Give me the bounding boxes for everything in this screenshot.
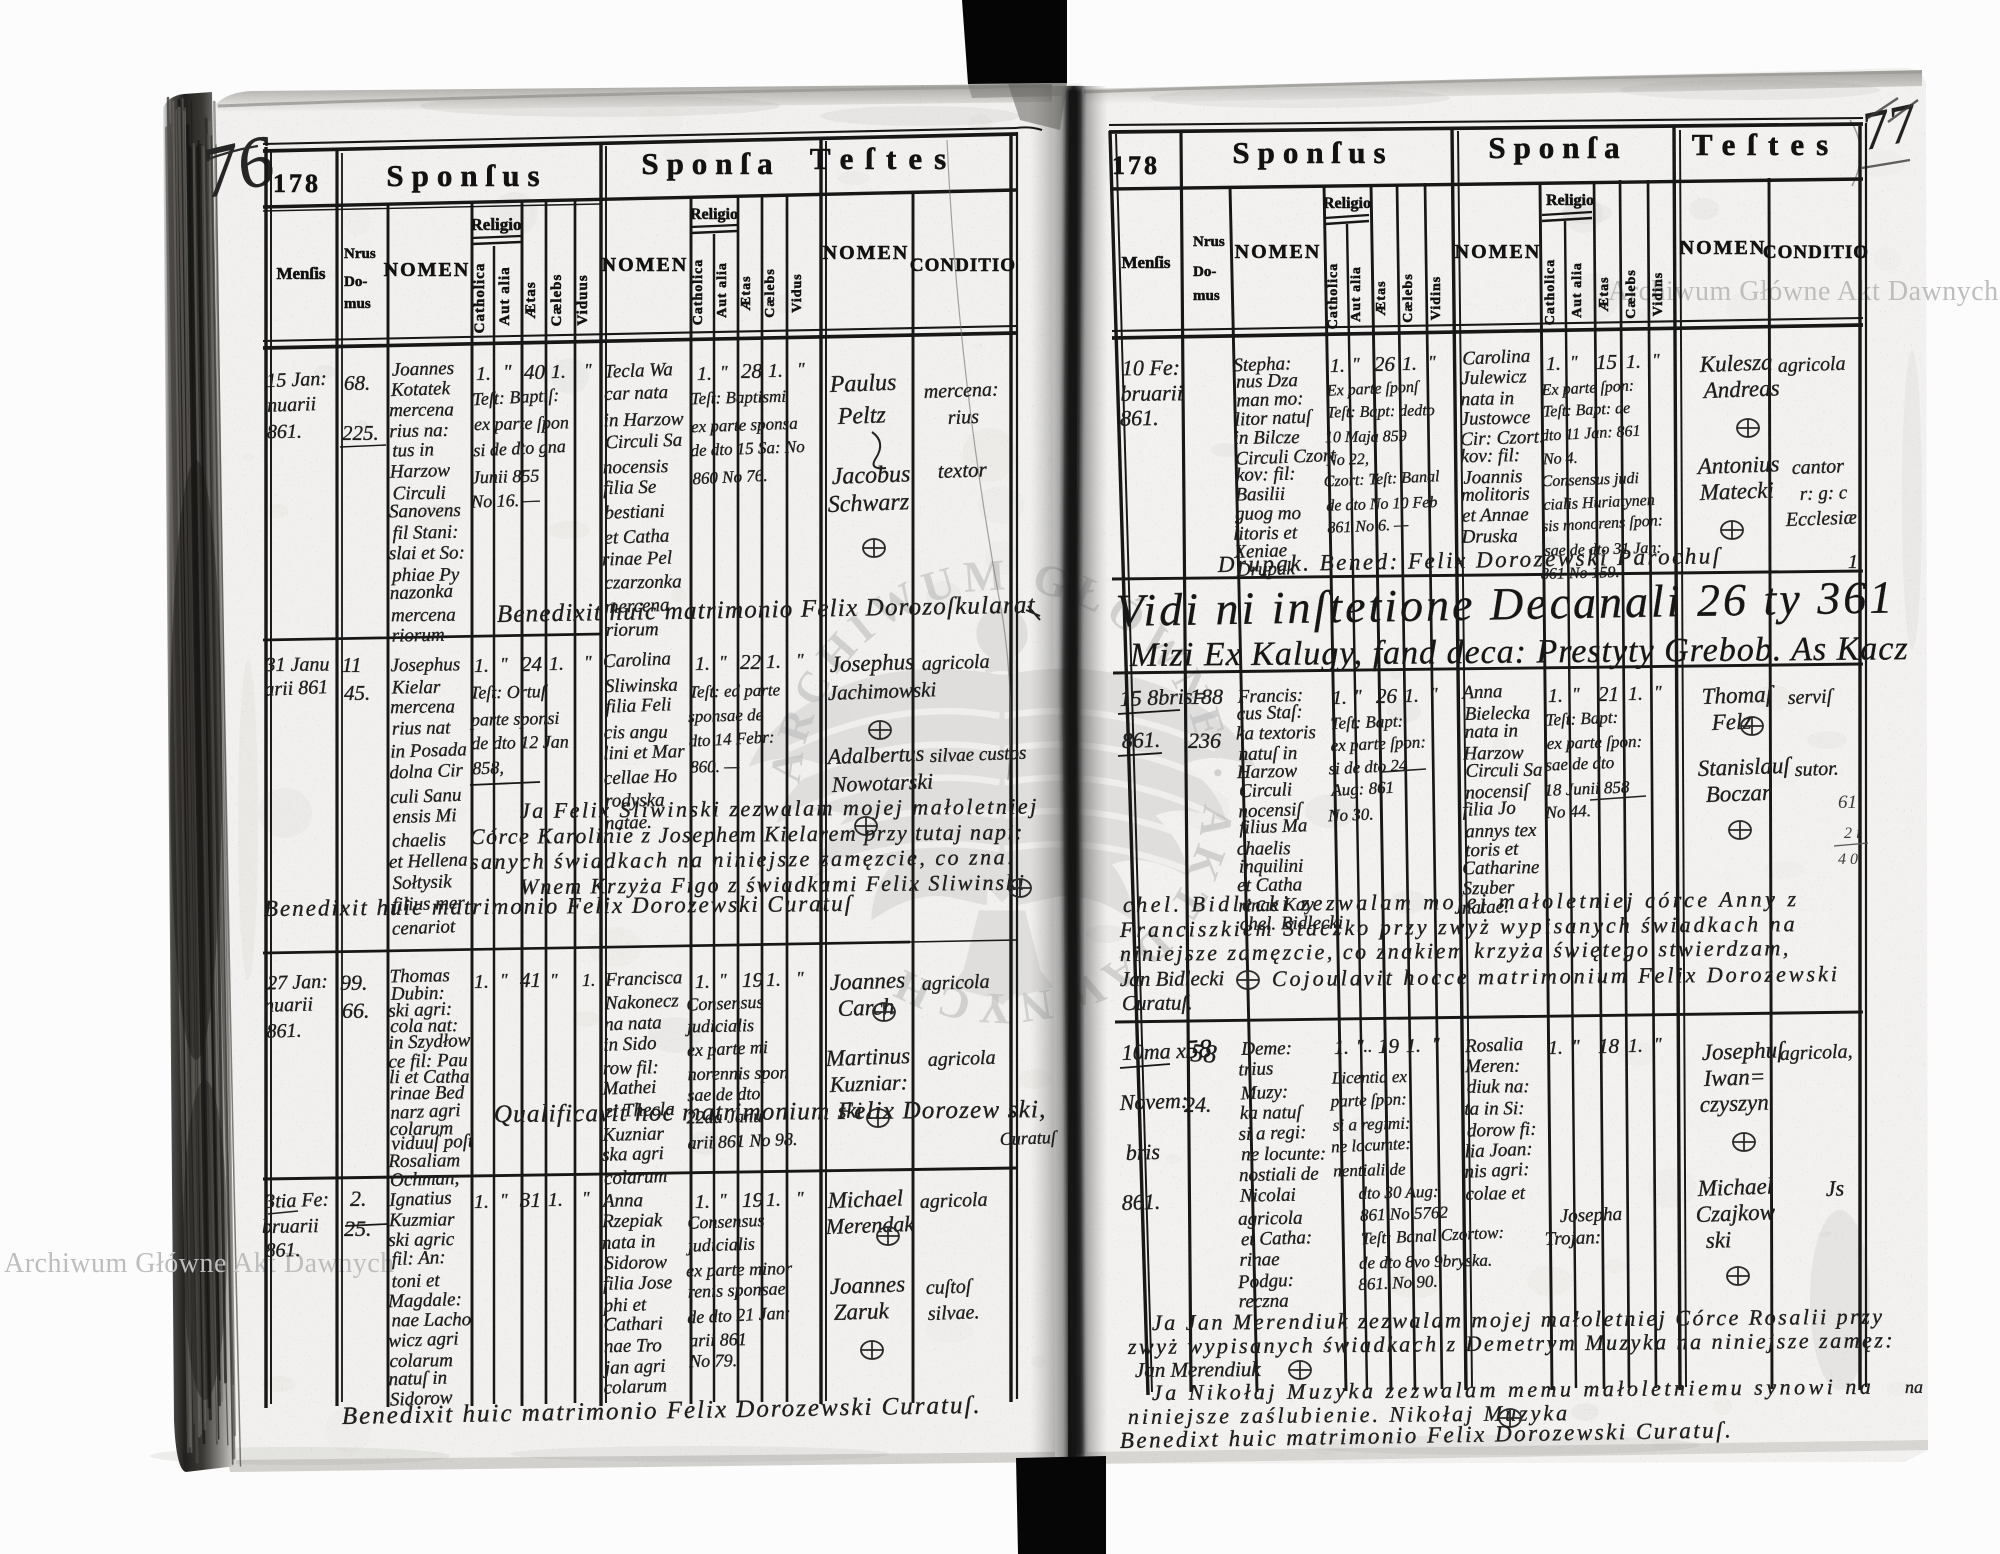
svg-text:Iwan=: Iwan= <box>1702 1064 1765 1091</box>
svg-text:Teſt: Bapt: dedto: Teſt: Bapt: dedto <box>1327 402 1435 422</box>
svg-text:agricola: agricola <box>919 1189 988 1213</box>
svg-text:861. No 90.: 861. No 90. <box>1358 1272 1438 1294</box>
svg-text:ex parte ſpon:: ex parte ſpon: <box>1547 732 1643 753</box>
svg-text:renis sponsae: renis sponsae <box>687 1278 785 1301</box>
svg-text:in Bilcze: in Bilcze <box>1234 427 1300 449</box>
svg-text:Benedixit huic matrimonio Feli: Benedixit huic matrimonio Felix Dorozews… <box>264 891 855 921</box>
svg-text:Ja Felix Sliwinski zezwalam mo: Ja Felix Sliwinski zezwalam mojej małole… <box>520 793 1039 823</box>
svg-text:No 22,: No 22, <box>1325 451 1369 470</box>
svg-text:1.: 1. <box>697 363 712 385</box>
svg-text:in Harzow: in Harzow <box>603 409 683 432</box>
svg-text:Catholica: Catholica <box>472 263 488 334</box>
svg-text:Cathari: Cathari <box>603 1313 663 1335</box>
svg-text:Catholica: Catholica <box>691 259 706 326</box>
svg-text:58: 58 <box>1190 1038 1218 1069</box>
svg-text:1.: 1. <box>1626 351 1641 373</box>
svg-text:Religio: Religio <box>1546 192 1594 209</box>
svg-text:mus: mus <box>344 296 371 312</box>
svg-text:2.: 2. <box>350 1186 367 1211</box>
svg-text:rius nat: rius nat <box>392 717 452 739</box>
svg-text:car nata: car nata <box>604 382 669 405</box>
svg-text:ex parte ſpon:: ex parte ſpon: <box>1330 732 1426 755</box>
svg-text:mercena: mercena <box>391 605 456 627</box>
svg-text:Aut alia: Aut alia <box>1349 266 1364 322</box>
svg-text:Mizi Ex Kalugy, fand deca: Pre: Mizi Ex Kalugy, fand deca: Prestyty Greb… <box>1129 630 1909 674</box>
svg-text:1.: 1. <box>551 361 566 383</box>
svg-text:si a regi:: si a regi: <box>1238 1122 1307 1145</box>
svg-text:Kuzmiar: Kuzmiar <box>388 1209 455 1231</box>
svg-text:dto 30 Aug:: dto 30 Aug: <box>1358 1182 1438 1203</box>
svg-text:1.: 1. <box>474 655 489 677</box>
svg-text:19: 19 <box>742 1188 764 1212</box>
svg-text:61: 61 <box>1838 792 1857 813</box>
svg-text:1.: 1. <box>1332 687 1347 709</box>
svg-text:sutor.: sutor. <box>1794 757 1839 781</box>
svg-text:Joannes: Joannes <box>829 967 905 995</box>
svg-text:Basilii: Basilii <box>1235 484 1285 506</box>
svg-text:ta in Si:: ta in Si: <box>1464 1098 1524 1120</box>
svg-text:Nrus: Nrus <box>344 246 376 262</box>
svg-text:Curatuſ.: Curatuſ. <box>1122 990 1193 1015</box>
svg-text:et Catha:: et Catha: <box>1241 1227 1313 1250</box>
svg-text:Francisca: Francisca <box>604 967 683 991</box>
svg-text:861.: 861. <box>1121 727 1160 753</box>
svg-text:agricola,: agricola, <box>1779 1040 1853 1065</box>
svg-text:Teſt: Bapt:: Teſt: Bapt: <box>1330 711 1403 733</box>
svg-text:ski: ski <box>1705 1227 1731 1253</box>
svg-text:arii 861: arii 861 <box>689 1329 747 1351</box>
svg-text:Deme:: Deme: <box>1240 1038 1292 1060</box>
svg-text:kov: fil:: kov: fil: <box>1236 464 1296 486</box>
svg-text:ne locunte:: ne locunte: <box>1241 1143 1326 1165</box>
svg-text:Teſt: Ortuſ: Teſt: Ortuſ <box>470 681 549 703</box>
svg-text:Curatuſ: Curatuſ <box>999 1127 1059 1149</box>
svg-text:NOMEN: NOMEN <box>823 242 910 264</box>
svg-text:1.: 1. <box>766 969 781 991</box>
svg-text:sponsae de: sponsae de <box>688 705 764 726</box>
svg-text:nata in: nata in <box>602 1231 656 1254</box>
svg-text:Ætas: Ætas <box>1597 276 1612 311</box>
svg-text:cuſtoſ: cuſtoſ <box>925 1275 974 1299</box>
svg-text:1.: 1. <box>474 971 489 993</box>
svg-text:Menſis: Menſis <box>1121 253 1170 272</box>
svg-text:": " <box>719 652 727 672</box>
svg-text:Trojan:: Trojan: <box>1544 1227 1601 1250</box>
svg-text:cellae Ho: cellae Ho <box>603 766 677 790</box>
svg-text:19: 19 <box>1378 1034 1400 1058</box>
svg-text:Kielar: Kielar <box>391 677 441 699</box>
svg-text:Vidins: Vidins <box>1429 276 1444 320</box>
svg-text:Cælebs: Cælebs <box>1624 269 1639 319</box>
svg-text:1.: 1. <box>766 1189 781 1211</box>
svg-text:Junii 855: Junii 855 <box>472 466 540 488</box>
svg-text:wicz agri: wicz agri <box>388 1328 459 1352</box>
svg-text:ska agri: ska agri <box>602 1143 664 1166</box>
svg-text:NOMEN: NOMEN <box>384 259 471 281</box>
svg-text:agricola: agricola <box>1238 1208 1303 1230</box>
svg-text:rinae: rinae <box>1239 1249 1279 1271</box>
svg-text:diuk na:: diuk na: <box>1467 1076 1530 1098</box>
svg-text:Antonius: Antonius <box>1695 451 1780 479</box>
svg-text:judicialis: judicialis <box>685 1015 754 1036</box>
svg-text:row fil:: row fil: <box>603 1057 659 1079</box>
svg-text:nostiali de: nostiali de <box>1239 1164 1319 1187</box>
svg-text:Ætas: Ætas <box>523 281 539 318</box>
svg-text:Zaruk: Zaruk <box>833 1298 890 1325</box>
svg-text:bestiani: bestiani <box>604 501 665 524</box>
svg-text:Teſtes: Teſtes <box>810 141 958 176</box>
svg-text:1.: 1. <box>582 970 596 990</box>
svg-text:ex parte ſpon: ex parte ſpon <box>474 412 569 434</box>
svg-text:Josephuſ: Josephuſ <box>1701 1037 1787 1065</box>
svg-text:rius: rius <box>947 406 979 429</box>
svg-text:Consensus judi: Consensus judi <box>1541 470 1639 490</box>
svg-text:Viduus: Viduus <box>575 274 591 325</box>
svg-text:3tia Fe:: 3tia Fe: <box>264 1189 330 1213</box>
svg-text:Jachimowski: Jachimowski <box>827 677 936 705</box>
svg-text:Teſt: Bapt:: Teſt: Bapt: <box>1545 708 1618 730</box>
svg-text:filia Jose: filia Jose <box>603 1272 673 1295</box>
svg-text:99.: 99. <box>340 970 368 995</box>
svg-text:rinae Pel: rinae Pel <box>602 547 673 570</box>
svg-text:czarzonka: czarzonka <box>604 571 681 593</box>
svg-text:Religio: Religio <box>1323 195 1371 212</box>
svg-text:Teſtes: Teſtes <box>1692 127 1840 162</box>
svg-text:slai et So:: slai et So: <box>389 542 465 564</box>
svg-text:1.: 1. <box>1406 1035 1421 1057</box>
svg-text:": " <box>584 652 592 672</box>
svg-text:No 30.: No 30. <box>1327 804 1374 825</box>
svg-text:Thomaſ: Thomaſ <box>1701 681 1776 709</box>
svg-text:10 Maja 859: 10 Maja 859 <box>1325 428 1407 446</box>
svg-text:colae et: colae et <box>1465 1183 1526 1205</box>
svg-text:1.: 1. <box>476 363 491 385</box>
svg-text:Druska: Druska <box>1461 526 1518 548</box>
svg-text:ex parte sponsa: ex parte sponsa <box>691 414 798 437</box>
svg-text:cus Staſ:: cus Staſ: <box>1236 701 1303 724</box>
svg-text:10ma x: 10ma x <box>1121 1038 1186 1065</box>
svg-text:1.: 1. <box>548 1189 563 1211</box>
svg-text:No 4.: No 4. <box>1542 450 1578 469</box>
svg-text:arii 861: arii 861 <box>264 676 329 701</box>
svg-text:textor: textor <box>937 457 988 483</box>
svg-text:Martinus: Martinus <box>824 1043 910 1071</box>
svg-text:parte sponsi: parte sponsi <box>469 708 560 730</box>
svg-text:18: 18 <box>1598 1034 1620 1058</box>
svg-text:Julewicz: Julewicz <box>1461 366 1528 389</box>
svg-text:de dto 8vo 9bryska.: de dto 8vo 9bryska. <box>1359 1251 1493 1273</box>
svg-text:25.: 25. <box>344 1216 372 1241</box>
svg-text:nae Tro: nae Tro <box>604 1335 662 1357</box>
svg-text:si de dto 24: si de dto 24 <box>1328 755 1408 778</box>
svg-text:Catholica: Catholica <box>1326 263 1341 330</box>
svg-text:Catholica: Catholica <box>1543 259 1558 326</box>
svg-text:": " <box>719 970 727 990</box>
svg-text:in Posada: in Posada <box>390 739 467 762</box>
svg-text:Paulus: Paulus <box>828 370 897 398</box>
svg-text:ne locumte:: ne locumte: <box>1331 1134 1412 1157</box>
svg-text:mus: mus <box>1193 288 1220 304</box>
svg-text:filia Jo: filia Jo <box>1462 798 1516 821</box>
svg-text:fil: An:: fil: An: <box>391 1247 446 1270</box>
svg-text:na: na <box>1905 1377 1923 1397</box>
svg-text:Matecki: Matecki <box>1698 477 1774 505</box>
svg-text:"..: ".. <box>1356 1036 1373 1056</box>
svg-text:Adalbertus: Adalbertus <box>825 741 924 769</box>
svg-text:40: 40 <box>524 360 546 384</box>
svg-text:225.: 225. <box>342 421 379 445</box>
svg-text:1.: 1. <box>1402 353 1417 375</box>
svg-text:861.: 861. <box>267 421 302 443</box>
svg-text:Czajkow: Czajkow <box>1695 1199 1776 1227</box>
svg-text:tus in: tus in <box>392 439 434 461</box>
svg-text:fil Stani:: fil Stani: <box>392 522 458 545</box>
svg-text:cis angu: cis angu <box>604 722 668 744</box>
svg-text:45.: 45. <box>344 681 370 705</box>
svg-text:1.: 1. <box>1628 1035 1643 1057</box>
svg-text:15: 15 <box>1596 350 1617 374</box>
svg-text:czyszyn: czyszyn <box>1699 1090 1769 1117</box>
svg-text:Mathei: Mathei <box>601 1077 656 1100</box>
svg-text:Andreas: Andreas <box>1701 375 1780 403</box>
svg-text:Do-: Do- <box>1193 264 1216 280</box>
svg-text:bruarii: bruarii <box>262 1215 319 1238</box>
svg-text:Anna: Anna <box>1460 681 1503 704</box>
svg-text:11: 11 <box>342 653 361 677</box>
svg-text:bruarii: bruarii <box>1120 380 1183 406</box>
svg-text:858,: 858, <box>472 757 504 778</box>
svg-text:NOMEN: NOMEN <box>602 254 689 276</box>
svg-text:": " <box>1570 352 1578 372</box>
svg-text:": " <box>796 650 804 670</box>
svg-text:178: 178 <box>273 169 321 198</box>
svg-text:Circuli Sa: Circuli Sa <box>1465 760 1542 782</box>
svg-text:Do-: Do- <box>344 274 367 290</box>
svg-text:": " <box>550 970 558 990</box>
svg-text:Josephus: Josephus <box>829 649 914 677</box>
svg-text:nentiali de: nentiali de <box>1333 1160 1406 1181</box>
svg-text:parte ſpon:: parte ſpon: <box>1329 1089 1407 1111</box>
svg-text:860. —: 860. — <box>690 757 740 777</box>
svg-text:28: 28 <box>741 359 763 383</box>
svg-text:nuarii: nuarii <box>267 393 317 417</box>
svg-text:Schwarz: Schwarz <box>827 489 910 518</box>
svg-text:": " <box>582 1188 590 1208</box>
svg-text:1.: 1. <box>695 653 710 675</box>
svg-text:Vidus: Vidus <box>790 273 805 313</box>
svg-text:Kulesza: Kulesza <box>1698 349 1773 377</box>
svg-text:1.: 1. <box>1334 1037 1349 1059</box>
svg-text:Aut alia: Aut alia <box>715 262 730 318</box>
svg-text:19: 19 <box>742 968 764 992</box>
svg-text:Circuli Sa: Circuli Sa <box>605 430 683 454</box>
svg-text:molitoris: molitoris <box>1461 484 1530 506</box>
svg-text:Felz: Felz <box>1710 709 1751 735</box>
svg-text:": " <box>1572 684 1580 704</box>
svg-text:Anna: Anna <box>601 1190 643 1212</box>
svg-text:No 16. —: No 16. — <box>470 489 541 511</box>
svg-text:18 Junii 858: 18 Junii 858 <box>1544 777 1630 799</box>
svg-text:ka natuſ: ka natuſ <box>1240 1102 1305 1124</box>
svg-text:norennis spon: norennis spon <box>687 1062 788 1084</box>
svg-text:kov: fil:: kov: fil: <box>1460 445 1520 467</box>
svg-text:Consensus: Consensus <box>686 992 764 1015</box>
svg-text:nis agri:: nis agri: <box>1464 1159 1530 1183</box>
svg-text:": " <box>1352 354 1360 374</box>
svg-text:Boczar: Boczar <box>1705 780 1772 807</box>
svg-text:Stanislauſ: Stanislauſ <box>1697 753 1793 781</box>
svg-text:Qualificavit hoc matrimonium F: Qualificavit hoc matrimonium Felix Doroz… <box>494 1096 1047 1128</box>
svg-text:2 ı: 2 ı <box>1844 825 1860 842</box>
svg-text:Joannes: Joannes <box>392 358 455 381</box>
svg-text:Teſt: ed parte: Teſt: ed parte <box>689 680 781 701</box>
svg-text:CONDITIO: CONDITIO <box>1763 242 1869 263</box>
svg-text:colarum: colarum <box>604 1166 668 1190</box>
svg-text:Carch: Carch <box>837 994 894 1021</box>
svg-text:Nakonecz: Nakonecz <box>603 990 679 1014</box>
svg-text:Merendak: Merendak <box>824 1211 915 1239</box>
svg-text:Nowotarski: Nowotarski <box>830 768 933 797</box>
svg-text:Jacobus: Jacobus <box>831 461 911 490</box>
svg-text:lini et Mar: lini et Mar <box>603 741 685 764</box>
svg-text:861 No 6. —: 861 No 6. — <box>1327 516 1409 537</box>
svg-text:No 44.: No 44. <box>1544 801 1591 822</box>
svg-text:cantor: cantor <box>1791 455 1844 479</box>
svg-text:861.: 861. <box>1120 405 1159 431</box>
svg-text:1.: 1. <box>1330 355 1345 377</box>
svg-text:Muzy:: Muzy: <box>1239 1081 1288 1104</box>
svg-text:Novem:: Novem: <box>1118 1088 1188 1115</box>
svg-text:Ignatius: Ignatius <box>388 1188 452 1211</box>
svg-text:": " <box>796 968 804 988</box>
svg-text:15 Jan:: 15 Jan: <box>266 368 327 392</box>
svg-text:in Sido: in Sido <box>603 1033 657 1056</box>
svg-text:178: 178 <box>1112 151 1160 180</box>
svg-text:Podgu:: Podgu: <box>1237 1270 1295 1293</box>
svg-text:nuarii: nuarii <box>264 994 313 1017</box>
svg-text:dolna Cir: dolna Cir <box>389 760 464 783</box>
svg-text:Archiwum Główne Akt Dawnych: Archiwum Główne Akt Dawnych <box>1608 276 1999 307</box>
svg-text:1.: 1. <box>1548 685 1563 707</box>
svg-text:Meren:: Meren: <box>1464 1056 1520 1078</box>
svg-text:silvae custos: silvae custos <box>929 743 1026 767</box>
svg-text:22: 22 <box>740 650 762 674</box>
svg-text:Sponſus: Sponſus <box>1232 135 1393 170</box>
svg-text:ex parte minor: ex parte minor <box>686 1258 793 1281</box>
svg-text:filius Ma: filius Ma <box>1239 815 1308 838</box>
svg-text:Peltz: Peltz <box>836 402 887 430</box>
svg-text:mercena: mercena <box>390 696 455 718</box>
svg-text:r: g: c: r: g: c <box>1799 482 1848 505</box>
svg-text:filia Se: filia Se <box>603 477 657 499</box>
svg-text:NOMEN: NOMEN <box>1455 241 1542 263</box>
svg-text:Js: Js <box>1825 1175 1844 1201</box>
svg-text:Tecla Wa: Tecla Wa <box>604 359 674 382</box>
svg-text:colarum: colarum <box>603 1375 667 1398</box>
svg-text:": " <box>719 1190 727 1210</box>
svg-text:arii 861 No 98.: arii 861 No 98. <box>687 1129 798 1153</box>
svg-text:Josephus: Josephus <box>390 654 460 676</box>
svg-text:riorum: riorum <box>392 625 445 647</box>
svg-text:1.: 1. <box>1848 551 1863 573</box>
svg-text:31: 31 <box>519 1188 541 1212</box>
svg-text:66.: 66. <box>342 998 370 1023</box>
svg-text:silvae.: silvae. <box>927 1301 979 1325</box>
svg-text:1.: 1. <box>695 1191 710 1213</box>
svg-text:Kotatek: Kotatek <box>390 378 451 401</box>
svg-text:": " <box>720 362 728 382</box>
svg-text:Michael: Michael <box>826 1185 903 1213</box>
svg-text:1.: 1. <box>1548 1037 1563 1059</box>
svg-text:31 Janu: 31 Janu <box>264 653 329 676</box>
svg-text:Sponſa: Sponſa <box>641 146 780 181</box>
svg-text:na nata: na nata <box>604 1012 662 1035</box>
svg-text:861 No 5762: 861 No 5762 <box>1360 1203 1449 1225</box>
svg-text:188: 188 <box>1190 684 1223 709</box>
svg-text:Sponſus: Sponſus <box>386 158 547 193</box>
svg-text:Kuzniar:: Kuzniar: <box>828 1069 908 1097</box>
svg-text:Cojoulavit hocce matrimonium F: Cojoulavit hocce matrimonium Felix Doroz… <box>1272 961 1840 991</box>
svg-text:1.: 1. <box>766 651 781 673</box>
svg-text:": " <box>1432 1034 1440 1054</box>
svg-text:Teſt: Baptismi: Teſt: Baptismi <box>691 387 787 408</box>
svg-text:Cælebs: Cælebs <box>549 274 565 327</box>
svg-text:Ecclesiæ: Ecclesiæ <box>1784 507 1857 532</box>
svg-text:sae de dto: sae de dto <box>1545 753 1615 775</box>
svg-text:": " <box>584 360 592 380</box>
svg-text:1.: 1. <box>1404 685 1419 707</box>
svg-text:": " <box>500 654 508 674</box>
svg-text:Ætas: Ætas <box>739 275 754 310</box>
svg-text:Ætas: Ætas <box>1374 280 1389 315</box>
svg-text:et Catha: et Catha <box>604 526 670 549</box>
svg-text:serviſ: serviſ <box>1787 685 1835 709</box>
svg-text:Joannes: Joannes <box>829 1271 905 1299</box>
svg-text:nae Lacho: nae Lacho <box>391 1309 471 1331</box>
svg-text:Circuli: Circuli <box>1239 779 1293 802</box>
svg-text:41: 41 <box>520 968 541 992</box>
svg-text:24: 24 <box>521 652 543 676</box>
svg-text:27 Jan:: 27 Jan: <box>267 970 328 994</box>
svg-text:Nicolai: Nicolai <box>1239 1185 1296 1207</box>
svg-text:": " <box>503 361 512 383</box>
svg-text:Rzepiak: Rzepiak <box>601 1210 663 1232</box>
svg-text:nata in: nata in <box>1465 720 1519 742</box>
svg-text:Nrus: Nrus <box>1193 234 1225 250</box>
svg-text:": " <box>1654 1034 1662 1054</box>
svg-text:1.: 1. <box>695 971 710 993</box>
svg-text:Aug: 861: Aug: 861 <box>1330 778 1395 800</box>
svg-text:": " <box>1654 682 1662 702</box>
svg-text:1.: 1. <box>549 653 564 675</box>
svg-text:Sponſa: Sponſa <box>1488 130 1627 165</box>
svg-text:1.: 1. <box>474 1191 489 1213</box>
svg-text:10 Fe:: 10 Fe: <box>1122 355 1180 381</box>
svg-text:judicialis: judicialis <box>686 1234 756 1256</box>
svg-text:1.: 1. <box>768 360 783 382</box>
svg-text:1.: 1. <box>1546 353 1561 375</box>
svg-text:de dto 12 Jan: de dto 12 Jan <box>471 731 569 753</box>
svg-text:Carolina: Carolina <box>603 648 672 672</box>
svg-text:filia Feli: filia Feli <box>605 694 672 717</box>
svg-text:Religio: Religio <box>690 206 738 223</box>
svg-text:Josepha: Josepha <box>1559 1204 1622 1227</box>
svg-text:agricola: agricola <box>1777 353 1846 377</box>
svg-text:26: 26 <box>1376 684 1398 708</box>
svg-text:NOMEN: NOMEN <box>1680 237 1767 259</box>
svg-text:CONDITIO: CONDITIO <box>910 255 1016 276</box>
svg-text:": " <box>797 359 805 379</box>
